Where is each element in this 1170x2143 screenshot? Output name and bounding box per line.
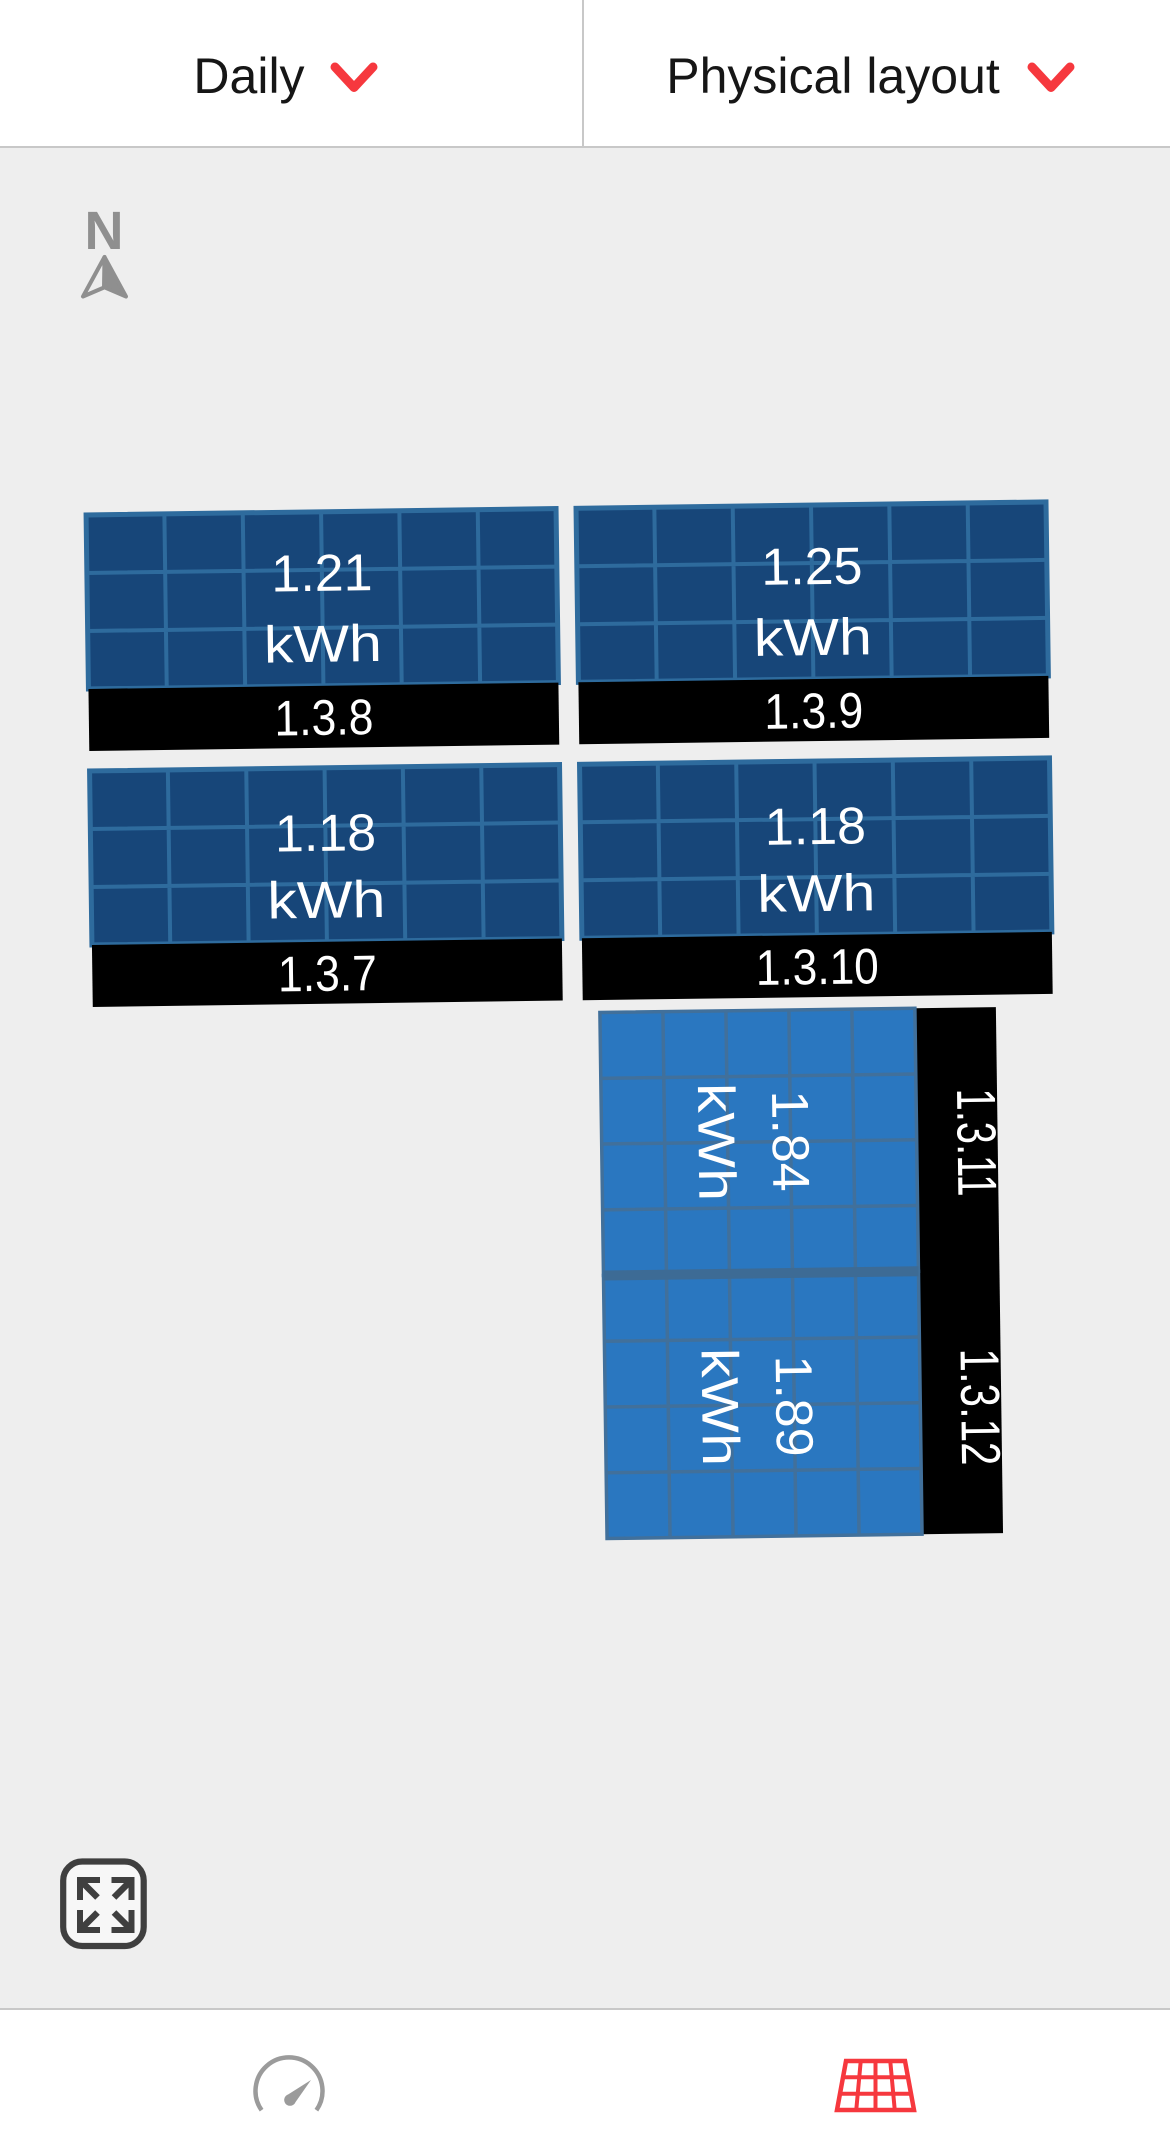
svg-text:kWh: kWh — [267, 871, 386, 931]
svg-text:1.18: 1.18 — [764, 797, 866, 856]
svg-text:1.3.7: 1.3.7 — [277, 945, 377, 1002]
svg-text:1.21: 1.21 — [271, 544, 373, 603]
svg-text:N: N — [85, 201, 124, 261]
svg-text:1.3.12: 1.3.12 — [949, 1348, 1013, 1466]
svg-text:kWh: kWh — [263, 615, 382, 675]
svg-text:kWh: kWh — [757, 864, 876, 924]
svg-text:1.25: 1.25 — [761, 537, 863, 596]
svg-text:kWh: kWh — [686, 1083, 746, 1202]
svg-text:kWh: kWh — [753, 608, 872, 668]
svg-text:Daily: Daily — [193, 48, 304, 104]
svg-text:1.84: 1.84 — [760, 1090, 819, 1192]
svg-text:kWh: kWh — [689, 1348, 749, 1467]
svg-text:1.3.8: 1.3.8 — [274, 689, 374, 746]
svg-text:1.3.11: 1.3.11 — [945, 1088, 1008, 1197]
svg-text:Physical layout: Physical layout — [666, 48, 1000, 104]
svg-text:1.18: 1.18 — [274, 804, 376, 863]
svg-text:1.89: 1.89 — [764, 1355, 823, 1457]
svg-text:1.3.9: 1.3.9 — [764, 682, 864, 739]
svg-text:1.3.10: 1.3.10 — [755, 938, 879, 996]
